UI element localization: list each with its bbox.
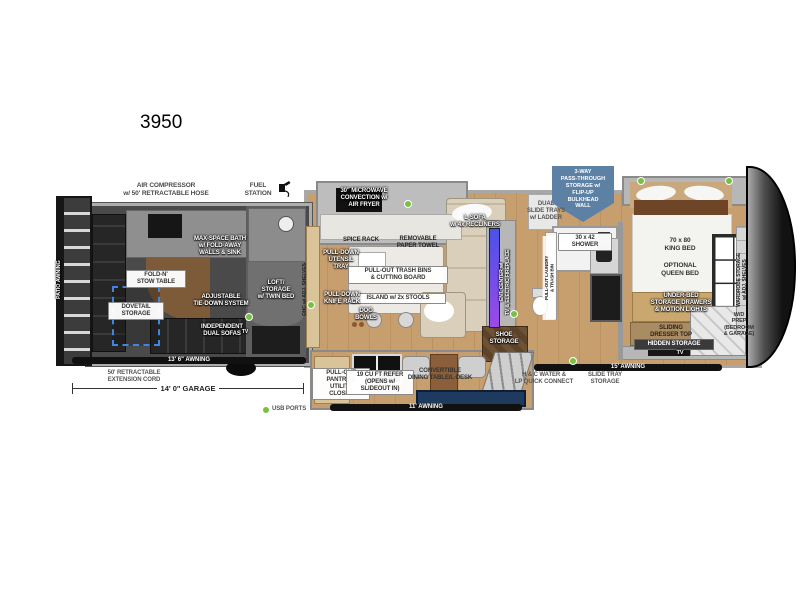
dog-bowls-label: DOG BOWLS (348, 308, 384, 322)
garage-awning-bar: 13' 6" AWNING (72, 357, 306, 364)
garage-kitchenette (148, 214, 182, 238)
patio-awning-label: PATIO AWNING (56, 232, 62, 328)
fuel-station-label: FUEL STATION (240, 182, 276, 197)
bedroom-tv-label: TV (648, 350, 712, 356)
knife-rack-label: PULL-DOWN KNIFE RACK (314, 292, 370, 306)
dual-slide-trays-label: DUAL SLIDE TRAYS w/ LADDER (520, 201, 572, 222)
dim-line-right (219, 388, 303, 389)
usb-dot-bed-left (637, 177, 645, 185)
spice-rack-label: SPICE RACK (336, 237, 386, 244)
usb-dot-bed-right (725, 177, 733, 185)
hc-water-label: H & C WATER & LP QUICK CONNECT (512, 372, 576, 386)
dining-label: CONVERTIBLE DINING TABLE/L-DESK (394, 368, 486, 382)
stool-right (398, 312, 414, 328)
slide-tray-storage-label: SLIDE TRAY STORAGE (578, 372, 632, 386)
shoe-storage-label: SHOE STORAGE (484, 332, 524, 346)
usb-dot-ent-center (510, 310, 518, 318)
l-sofa-label: L-SOFA w/ 4x RECLINERS (436, 215, 514, 229)
paper-towel-label: REMOVABLE PAPER TOWEL (386, 236, 450, 250)
king-bed-label: 70 x 80 KING BED (648, 237, 712, 252)
bedroom-awning-bar: 15' AWNING (534, 364, 722, 371)
main-awning-bar: 11' AWNING (330, 404, 522, 411)
ent-center-label: ENT. CENTER w/ TV & ELECTRIC FIREPLACE (500, 230, 512, 334)
fuel-nozzle-icon (276, 179, 292, 197)
loft-label: LOFT/ STORAGE w/ TWIN BED (248, 280, 304, 301)
sliding-dresser-label: SLIDING DRESSER TOP (634, 325, 708, 339)
air-compressor-label: AIR COMPRESSOR w/ 50' RETRACTABLE HOSE (96, 182, 236, 197)
usb-dot-ohc (307, 301, 315, 309)
wardrobe-label: WARDROBE STORAGE w/ ADJ. SHELVES (737, 232, 749, 328)
microwave-label: 30" MICROWAVE CONVECTION w/ AIR FRYER (320, 188, 408, 209)
usb-legend-label: USB PORTS (272, 406, 322, 413)
dog-bowl-1 (352, 322, 357, 327)
usb-dot-kitchen (404, 200, 412, 208)
washer-prep-cabinet (590, 274, 622, 322)
shower-label: 30 x 42 SHOWER (558, 233, 612, 251)
dovetail-storage-label: DOVETAIL STORAGE (108, 302, 164, 320)
optional-queen-label: OPTIONAL QUEEN BED (646, 262, 714, 277)
bed-blanket (634, 200, 728, 215)
extension-cord-label: 50' RETRACTABLE EXTENSION CORD (86, 370, 182, 384)
ohc-label: OHC w/ ADJ. SHELVES (303, 240, 309, 340)
floorplan: 3950 PATIO AWNING MAX-SPACE BATH w/ FOLD… (0, 0, 800, 600)
garage-tv-label: TV (238, 330, 252, 336)
usb-dot-utility (569, 357, 577, 365)
model-number: 3950 (140, 112, 182, 134)
laundry-label: PULL-OUT LAUNDRY & TRASH BIN (543, 236, 556, 320)
max-space-bath-label: MAX-SPACE BATH w/ FOLD-AWAY WALLS & SINK (168, 236, 272, 257)
garage-bath-sink (278, 216, 294, 232)
hidden-storage-label: HIDDEN STORAGE (634, 339, 714, 350)
usb-dot-loft (245, 313, 253, 321)
dog-bowl-2 (359, 322, 364, 327)
usb-legend-dot (262, 406, 270, 414)
dim-line-left (73, 388, 157, 389)
dim-tick-right (303, 383, 304, 394)
garage-length-label: 14' 0" GARAGE (157, 384, 220, 393)
fold-n-stow-label: FOLD-N' STOW TABLE (126, 270, 186, 288)
trash-bins-label: PULL-OUT TRASH BINS & CUTTING BOARD (348, 266, 448, 284)
